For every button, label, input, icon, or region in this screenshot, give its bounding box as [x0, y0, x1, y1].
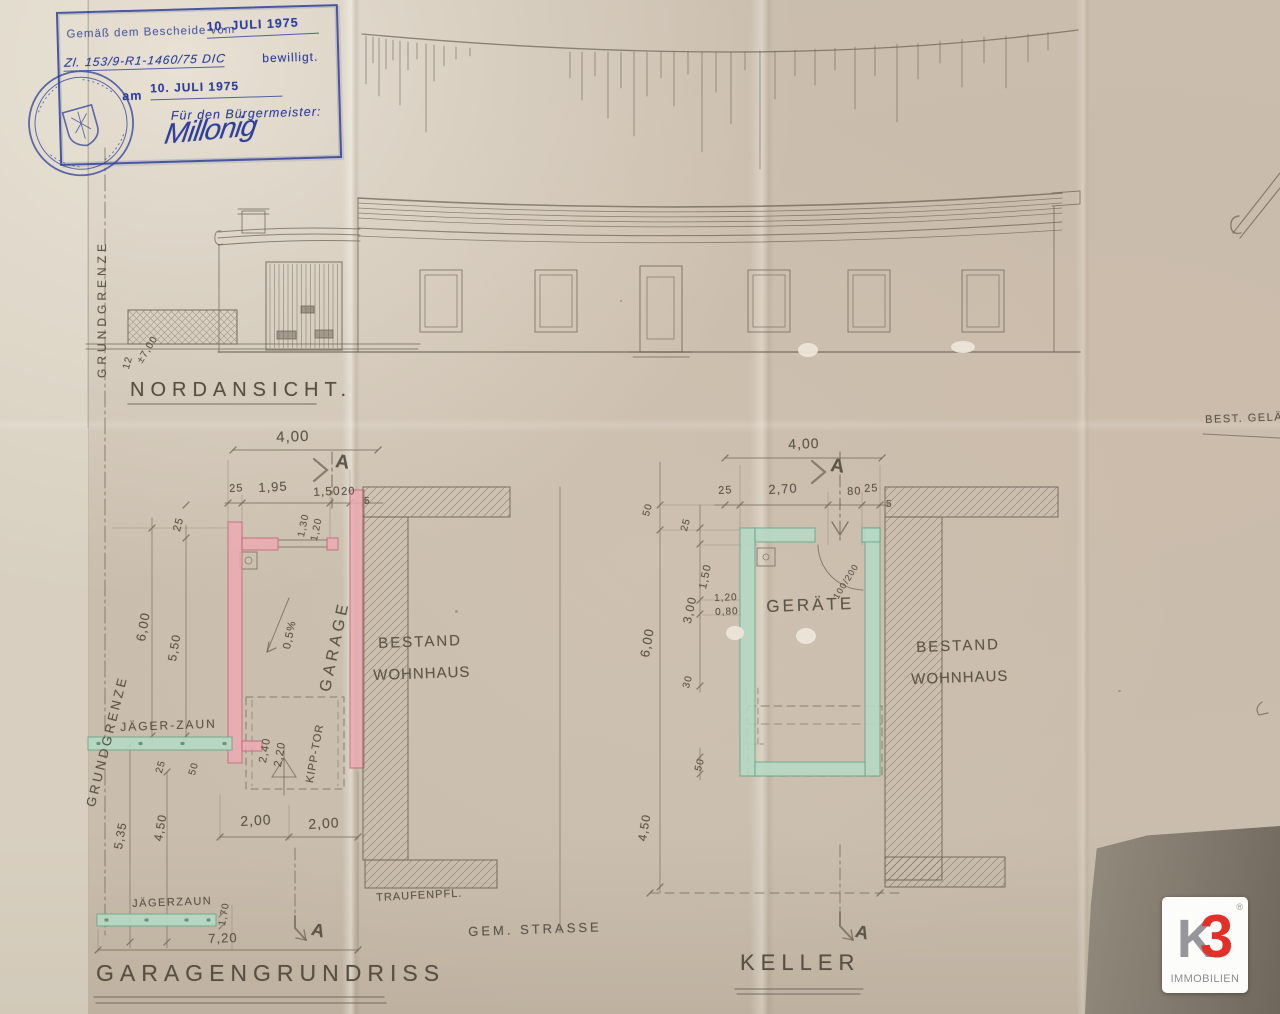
paper-speck	[1118, 690, 1121, 692]
boundary-label-elevation: GRUNDGRENZE	[96, 240, 108, 378]
adjacent-drawing-fragment	[1203, 173, 1280, 715]
keller-plan-title: KELLER	[740, 952, 860, 974]
logo-letter-3: 3	[1200, 903, 1233, 970]
neighbor-label-right-2: WOHNHAUS	[911, 669, 1009, 687]
garage-dim-half-2: 2,00	[308, 815, 340, 831]
paper-speck	[620, 300, 622, 302]
garage-dim-total-bottom: 7,20	[208, 931, 238, 945]
scanned-blueprint: Gemäß dem Bescheide vom 10. JULI 1975 Zl…	[0, 0, 1280, 1014]
garage-dim-half-1: 2,00	[240, 812, 272, 828]
garage-dim-wall-small: 5	[364, 497, 371, 507]
stamp-am-date: 10. JULI 1975	[150, 79, 282, 101]
keller-dim-total-width: 4,00	[788, 436, 820, 451]
neighbor-label-right-1: BESTAND	[916, 637, 1000, 655]
keller-chain-3: 25	[864, 483, 879, 495]
logo-subtitle: IMMOBILIEN	[1162, 973, 1248, 985]
garage-chain-1: 1,95	[258, 479, 288, 494]
keller-chain-0: 25	[718, 485, 733, 497]
garage-section-letter-top: A	[334, 452, 351, 473]
fence-label-top: JÄGER-ZAUN	[120, 718, 217, 733]
keller-dim-door-2: 0,80	[715, 607, 739, 618]
k3-immobilien-logo: ® K3 IMMOBILIEN	[1162, 897, 1248, 993]
paper-speck	[455, 610, 458, 613]
keller-dim-door-1: 1,20	[714, 593, 738, 604]
garage-chain-2: 1,50	[313, 485, 341, 498]
neighbor-label-left-1: BESTAND	[378, 633, 462, 651]
garage-dim-total-width: 4,00	[276, 429, 310, 445]
keller-section-letter-top: A	[829, 456, 846, 477]
elevation-house	[218, 191, 1080, 357]
keller-chain-1: 2,70	[768, 481, 798, 496]
photo-background-corner: ® K3 IMMOBILIEN	[1085, 826, 1280, 1014]
garage-plan-title: GARAGENGRUNDRISS	[96, 962, 445, 985]
approval-stamp: Gemäß dem Bescheide vom 10. JULI 1975 Zl…	[56, 4, 340, 164]
garage-chain-3: 20	[341, 486, 356, 498]
keller-chain-2: 80	[847, 486, 862, 498]
elevation-title: NORDANSICHT.	[130, 380, 352, 400]
terrain-line	[362, 30, 1078, 169]
garage-chain-0: 25	[229, 483, 244, 495]
neighbor-wall-left	[363, 487, 560, 933]
stamp-approved-label: bewilligt.	[262, 51, 318, 65]
keller-dim-wall-small: 5	[886, 500, 893, 510]
neighbor-label-left-2: WOHNHAUS	[373, 665, 471, 683]
logo-monogram: K3	[1162, 907, 1248, 967]
